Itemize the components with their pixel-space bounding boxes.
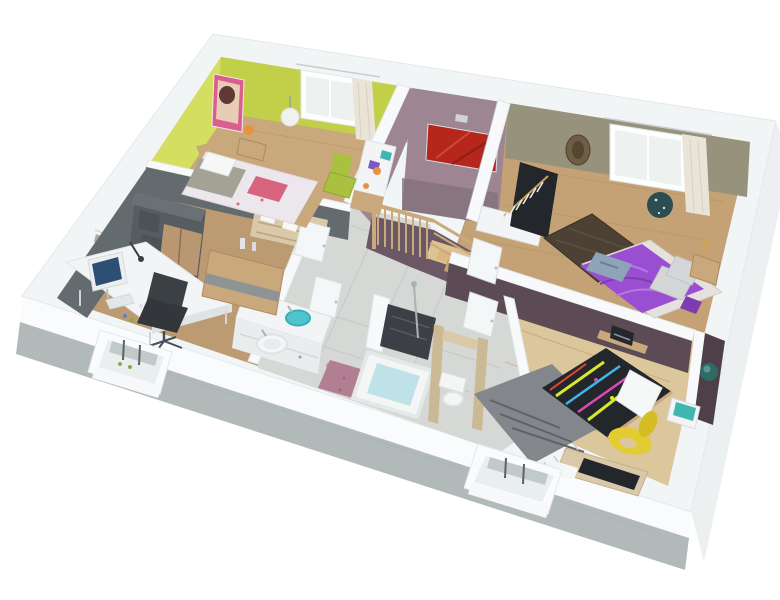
dark-disc-decor bbox=[647, 192, 673, 218]
disc-speck bbox=[655, 199, 658, 202]
window-mullion bbox=[139, 345, 140, 365]
drawer-handle bbox=[299, 356, 302, 359]
rug-dot bbox=[343, 377, 346, 380]
duvet-dot bbox=[261, 199, 264, 202]
desk-orange-ball bbox=[373, 167, 381, 175]
child-curtain bbox=[352, 78, 376, 142]
teen-poster-disc bbox=[700, 363, 718, 381]
door-knob bbox=[335, 301, 338, 304]
teal-bowl-sink bbox=[286, 311, 310, 326]
teen-poster-glow bbox=[704, 366, 711, 373]
desk-item-green bbox=[130, 318, 134, 322]
globe-pendant-lamp bbox=[281, 108, 299, 126]
brass-lamp bbox=[702, 240, 711, 249]
sill-plant bbox=[128, 365, 132, 369]
door-knob bbox=[495, 267, 498, 270]
vase bbox=[252, 242, 256, 251]
graffiti-dot bbox=[610, 396, 614, 400]
desk-item-blue bbox=[123, 314, 127, 318]
orange-table-lamp bbox=[244, 125, 254, 135]
master-curtain bbox=[682, 134, 710, 216]
desk-orange-ball bbox=[363, 183, 369, 189]
sill-plant bbox=[118, 362, 122, 366]
window-mullion bbox=[505, 458, 506, 478]
window-mullion bbox=[523, 464, 524, 484]
toilet-bowl bbox=[443, 392, 463, 406]
floorplan-render bbox=[0, 0, 780, 600]
disc-speck bbox=[658, 212, 660, 214]
window-mullion bbox=[123, 340, 124, 360]
desk-lamp-head bbox=[138, 256, 144, 262]
portrait-art-hair bbox=[219, 86, 235, 104]
disc-speck bbox=[663, 207, 665, 209]
rug-dot bbox=[339, 389, 342, 392]
monitor-stand bbox=[107, 289, 108, 298]
mouse bbox=[139, 304, 143, 308]
vase bbox=[240, 238, 245, 249]
graffiti-dot bbox=[594, 378, 598, 382]
floorplan-svg bbox=[0, 0, 780, 600]
door-knob bbox=[323, 245, 326, 248]
shower-head bbox=[411, 281, 417, 287]
basin-inner bbox=[263, 339, 281, 350]
duvet-dot bbox=[237, 203, 240, 206]
door-knob bbox=[491, 320, 494, 323]
mask-center bbox=[572, 141, 584, 159]
